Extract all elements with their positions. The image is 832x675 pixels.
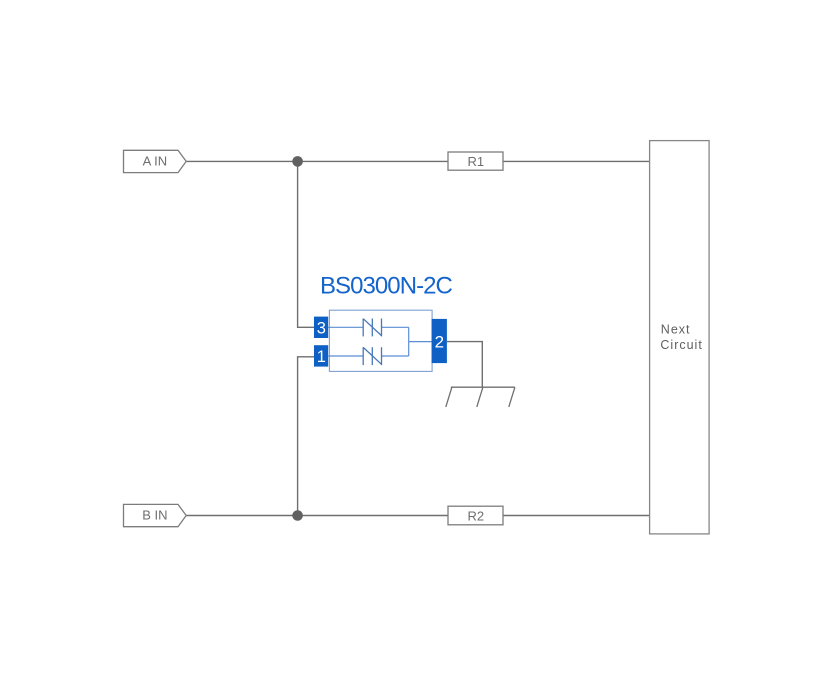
svg-text:A IN: A IN [143, 154, 168, 169]
svg-text:2: 2 [435, 332, 444, 351]
svg-text:B IN: B IN [142, 508, 167, 523]
svg-text:3: 3 [317, 320, 326, 338]
svg-text:1: 1 [317, 348, 326, 366]
svg-text:R2: R2 [467, 508, 484, 523]
svg-text:Next: Next [661, 323, 691, 337]
svg-text:Circuit: Circuit [660, 338, 702, 352]
svg-text:BS0300N-2C: BS0300N-2C [320, 272, 453, 299]
svg-text:R1: R1 [467, 154, 484, 169]
